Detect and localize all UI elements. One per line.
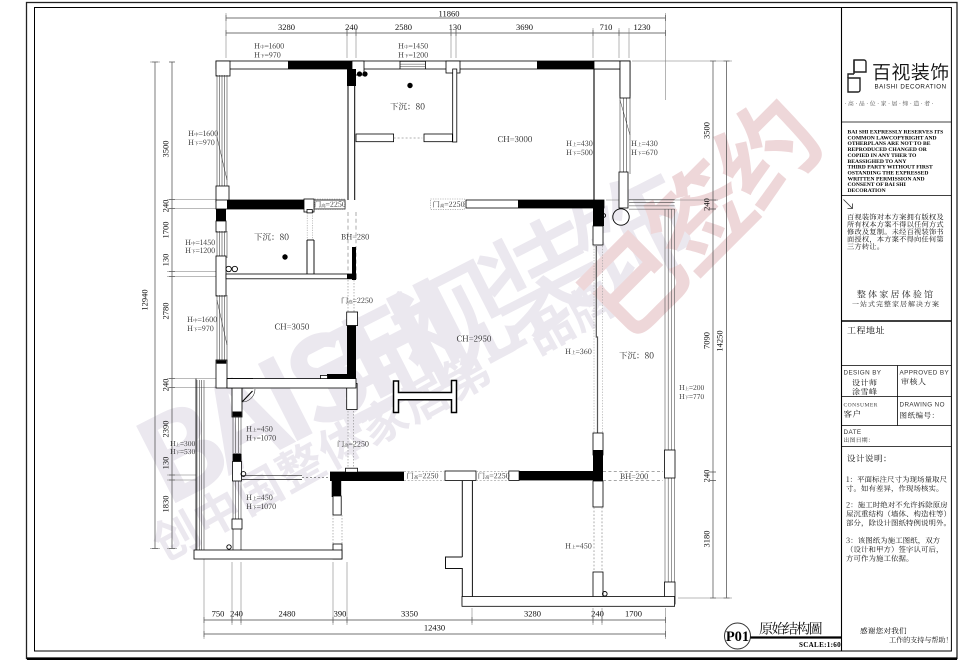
svg-text:SCALE:1:60: SCALE:1:60 <box>799 641 841 649</box>
svg-text:240: 240 <box>161 379 171 392</box>
svg-text:3690: 3690 <box>516 22 533 32</box>
svg-text:CONSUMER: CONSUMER <box>844 403 878 409</box>
svg-text:3500: 3500 <box>702 122 712 139</box>
svg-text:DATE: DATE <box>844 429 862 436</box>
svg-text:14250: 14250 <box>715 330 725 351</box>
svg-text:240: 240 <box>161 200 171 213</box>
svg-text:11860: 11860 <box>439 9 460 19</box>
svg-text:1230: 1230 <box>634 22 651 32</box>
svg-text:240: 240 <box>702 470 712 483</box>
svg-text:1830: 1830 <box>161 496 171 513</box>
svg-text:3350: 3350 <box>401 609 418 619</box>
svg-text:APPROVED BY: APPROVED BY <box>900 370 950 377</box>
svg-text:130: 130 <box>449 22 462 32</box>
svg-text:2580: 2580 <box>395 22 412 32</box>
svg-text:750: 750 <box>212 609 225 619</box>
svg-text:390: 390 <box>334 609 347 619</box>
svg-text:3500: 3500 <box>161 141 171 158</box>
svg-text:3280: 3280 <box>524 609 541 619</box>
svg-text:12430: 12430 <box>424 623 445 633</box>
svg-text:1700: 1700 <box>161 222 171 239</box>
svg-text:710: 710 <box>600 22 613 32</box>
svg-text:12940: 12940 <box>140 289 150 310</box>
svg-text:2780: 2780 <box>161 303 171 320</box>
svg-text:DECORATION: DECORATION <box>848 188 886 194</box>
svg-text:1700: 1700 <box>625 609 642 619</box>
svg-text:130: 130 <box>161 457 171 470</box>
svg-text:2390: 2390 <box>161 421 171 438</box>
svg-text:DESIGN BY: DESIGN BY <box>844 370 882 377</box>
svg-text:3280: 3280 <box>278 22 295 32</box>
svg-text:130: 130 <box>161 254 171 267</box>
svg-text:DRAWING NO: DRAWING NO <box>900 402 945 409</box>
svg-text:7090: 7090 <box>702 332 712 349</box>
svg-text:BAISHI DECORATION: BAISHI DECORATION <box>875 84 947 91</box>
svg-text:2480: 2480 <box>279 609 296 619</box>
svg-text:3180: 3180 <box>702 531 712 548</box>
svg-text:P01: P01 <box>726 629 749 645</box>
